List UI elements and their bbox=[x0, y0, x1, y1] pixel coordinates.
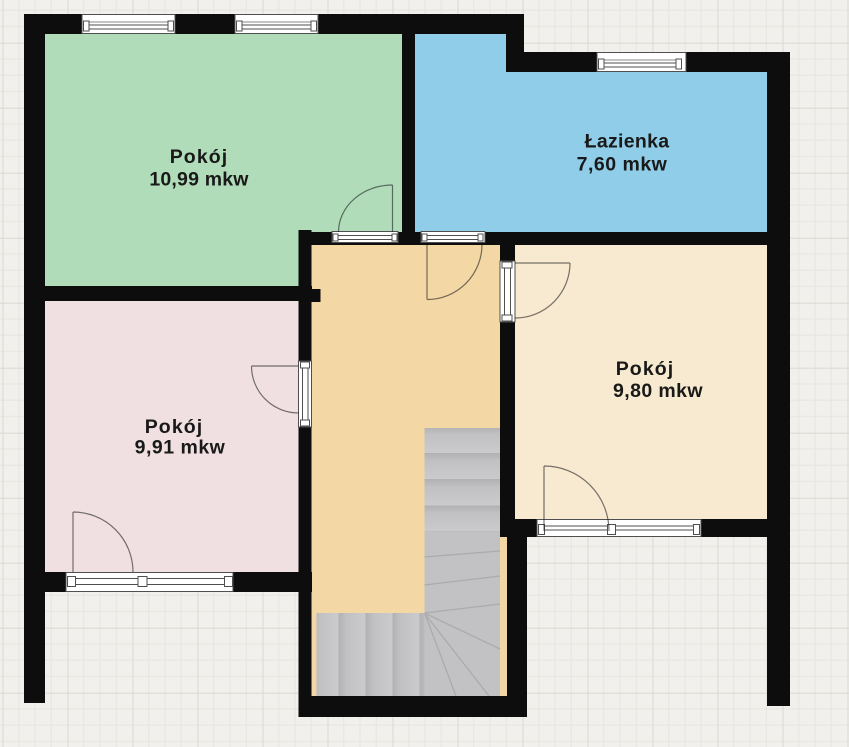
svg-text:10,99 mkw: 10,99 mkw bbox=[149, 169, 249, 191]
svg-text:Pokój: Pokój bbox=[616, 358, 675, 380]
svg-text:Pokój: Pokój bbox=[145, 416, 204, 438]
svg-text:9,80 mkw: 9,80 mkw bbox=[613, 380, 703, 402]
svg-text:9,91 mkw: 9,91 mkw bbox=[135, 437, 226, 459]
svg-text:7,60 mkw: 7,60 mkw bbox=[577, 154, 668, 176]
svg-text:Łazienka: Łazienka bbox=[585, 131, 670, 153]
svg-text:Pokój: Pokój bbox=[170, 146, 229, 168]
